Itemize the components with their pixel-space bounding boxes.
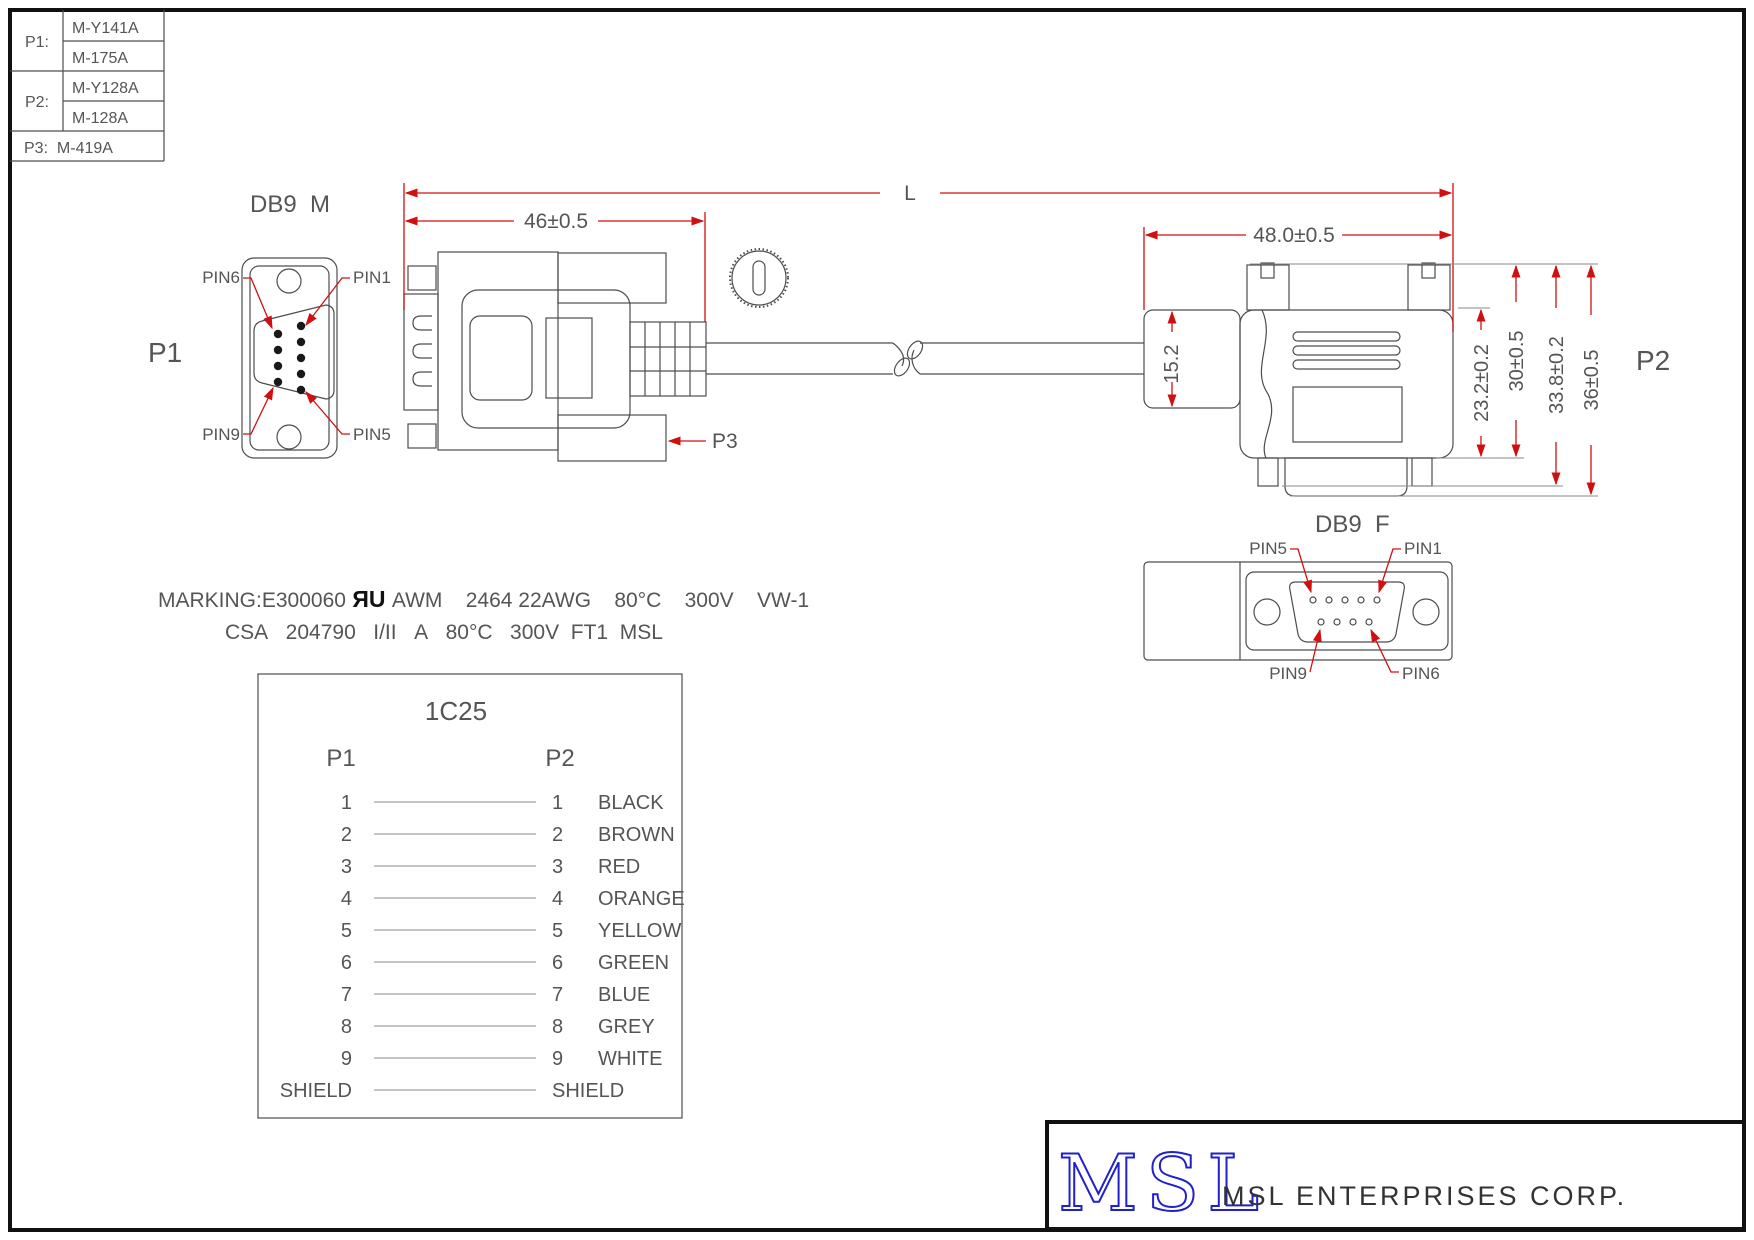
p1-side-view: P3 [404, 249, 788, 461]
dim-338-text: 33.8±0.2 [1546, 336, 1568, 414]
p2-screw-left [1258, 458, 1278, 486]
marking-block: MARKING:E300060 ЯU AWM 2464 22AWG 80°C 3… [158, 586, 809, 644]
svg-text:3: 3 [341, 856, 352, 878]
svg-text:SHIELD: SHIELD [280, 1080, 352, 1102]
db9f-pin5-label: PIN5 [1249, 539, 1287, 558]
svg-text:9: 9 [341, 1048, 352, 1070]
db9m-pin1-label: PIN1 [353, 268, 391, 287]
svg-text:9: 9 [552, 1048, 563, 1070]
db9m-pin1-leader [306, 278, 350, 325]
svg-text:RED: RED [598, 856, 640, 878]
p1-thumbscrew-head-bottom [408, 424, 436, 448]
wiring-row: 5 5 YELLOW [341, 920, 682, 942]
db9f-dshell [1290, 582, 1405, 642]
db9m-screw-hole-top [277, 269, 301, 293]
parts-table-p1-value2: M-175A [72, 50, 128, 67]
db9f-face-view: DB9 F PIN5 PIN1 PIN9 PIN6 [1144, 511, 1452, 683]
p2-thumbscrew-right [1408, 263, 1450, 310]
p1-flange-slots [413, 316, 432, 386]
company-name: MSL ENTERPRISES CORP. [1222, 1181, 1627, 1211]
db9m-pin6-leader [243, 278, 272, 328]
db9m-pin9-leader [243, 388, 273, 434]
p1-knurl-bottom [558, 415, 666, 461]
p3-ref-label: P3 [712, 430, 738, 453]
svg-text:6: 6 [341, 952, 352, 974]
dim-152-text: 15.2 [1161, 345, 1183, 384]
wiring-row: 2 2 BROWN [341, 824, 675, 846]
p2-screw-right [1412, 458, 1432, 486]
parts-table: P1: M-Y141A M-175A P2: M-Y128A M-128A P3… [10, 10, 164, 161]
db9m-pin6-label: PIN6 [202, 268, 240, 287]
p1-cable-ferrule [630, 322, 706, 396]
p1-front-shell [438, 252, 558, 450]
db9f-pin9-leader [1310, 630, 1320, 672]
p2-dshell-front [1285, 458, 1407, 496]
marking-line2: CSA 204790 I/II A 80°C 300V FT1 MSL [225, 621, 663, 644]
p1-knurl-top [558, 253, 666, 303]
wiring-row: 8 8 GREY [341, 1016, 655, 1038]
db9m-title: DB9 M [250, 191, 330, 218]
wiring-row: 1 1 BLACK [341, 792, 664, 814]
marking-line1: MARKING:E300060 ЯU AWM 2464 22AWG 80°C 3… [158, 586, 809, 612]
db9m-pin5-label: PIN5 [353, 425, 391, 444]
db9f-pin5-leader [1290, 549, 1311, 592]
svg-text:4: 4 [552, 888, 563, 910]
svg-text:2: 2 [341, 824, 352, 846]
wiring-row: 6 6 GREEN [341, 952, 669, 974]
p2-ref-label: P2 [1636, 345, 1670, 376]
wiring-title: 1C25 [425, 696, 487, 726]
drawing-sheet: P1: M-Y141A M-175A P2: M-Y128A M-128A P3… [0, 0, 1754, 1240]
db9f-pin1-label: PIN1 [1404, 539, 1442, 558]
svg-text:GREEN: GREEN [598, 952, 669, 974]
db9f-flange [1246, 572, 1448, 650]
svg-text:5: 5 [552, 920, 563, 942]
p1-knurl-grip [546, 318, 592, 398]
svg-text:BROWN: BROWN [598, 824, 675, 846]
svg-text:1: 1 [552, 792, 563, 814]
parts-table-p2-value2: M-128A [72, 110, 128, 127]
db9f-pin1-leader [1379, 549, 1401, 592]
parts-table-p2-value1: M-Y128A [72, 80, 139, 97]
thumbscrew-detail [730, 249, 788, 307]
db9m-face-view: DB9 M P1 PIN6 PIN1 PIN9 PIN5 [148, 191, 391, 458]
svg-text:ORANGE: ORANGE [598, 888, 685, 910]
wiring-col-p2: P2 [545, 745, 574, 772]
db9f-pin9-label: PIN9 [1269, 664, 1307, 683]
p2-thumbscrew-left [1247, 263, 1289, 310]
parts-table-p1-label: P1: [25, 34, 49, 51]
p2-body-joint [1261, 310, 1271, 458]
db9m-pin9-label: PIN9 [202, 425, 240, 444]
db9m-shell-outer [242, 258, 337, 458]
svg-text:4: 4 [341, 888, 352, 910]
title-block: MSL MSL ENTERPRISES CORP. [1047, 1122, 1744, 1229]
svg-text:7: 7 [341, 984, 352, 1006]
db9m-screw-hole-bottom [277, 425, 301, 449]
p2-strain-relief [1144, 310, 1240, 408]
p2-label-recess [1293, 387, 1402, 442]
db9f-pin6-label: PIN6 [1402, 664, 1440, 683]
svg-text:BLACK: BLACK [598, 792, 664, 814]
dim-46-text: 46±0.5 [524, 210, 588, 233]
svg-text:3: 3 [552, 856, 563, 878]
dim-48-text: 48.0±0.5 [1253, 224, 1335, 247]
db9f-title: DB9 F [1315, 511, 1390, 538]
svg-text:8: 8 [341, 1016, 352, 1038]
svg-text:YELLOW: YELLOW [598, 920, 681, 942]
db9m-dshell [254, 305, 334, 399]
wiring-col-p1: P1 [326, 745, 355, 772]
svg-text:BLUE: BLUE [598, 984, 650, 1006]
parts-table-p1-value1: M-Y141A [72, 20, 139, 37]
db9m-shell-inner [250, 266, 329, 450]
cable [706, 338, 1144, 378]
db9f-screw-hole-right [1413, 599, 1439, 625]
svg-text:GREY: GREY [598, 1016, 655, 1038]
wiring-row: 4 4 ORANGE [341, 888, 685, 910]
svg-text:6: 6 [552, 952, 563, 974]
wiring-row: 7 7 BLUE [341, 984, 650, 1006]
svg-text:8: 8 [552, 1016, 563, 1038]
dimensions: L 46±0.5 48.0±0.5 15.2 23.2±0.2 30±0.5 3… [404, 182, 1603, 496]
parts-table-p2-label: P2: [25, 94, 49, 111]
wiring-diagram: 1C25 P1 P2 1 1 BLACK 2 2 BROWN 3 3 RED 4… [258, 674, 685, 1118]
p1-ref-label: P1 [148, 337, 182, 368]
wiring-row: SHIELD SHIELD [280, 1080, 625, 1102]
wiring-row: 3 3 RED [341, 856, 640, 878]
wiring-row: 9 9 WHITE [341, 1048, 663, 1070]
p1-mating-flange [404, 294, 438, 410]
dim-232-text: 23.2±0.2 [1471, 344, 1493, 422]
dim-30-text: 30±0.5 [1506, 330, 1528, 391]
svg-text:7: 7 [552, 984, 563, 1006]
svg-text:5: 5 [341, 920, 352, 942]
p1-backshell-panel [470, 316, 532, 400]
db9f-pin-holes [1310, 597, 1380, 625]
svg-text:WHITE: WHITE [598, 1048, 662, 1070]
p2-vents [1293, 332, 1400, 369]
dim-L-text: L [904, 182, 916, 205]
dim-36-text: 36±0.5 [1581, 349, 1603, 410]
db9f-screw-hole-left [1254, 599, 1280, 625]
parts-table-p3-row: P3: M-419A [24, 140, 113, 157]
svg-text:1: 1 [341, 792, 352, 814]
svg-text:2: 2 [552, 824, 563, 846]
db9m-pin-dots [274, 322, 305, 394]
p1-thumbscrew-head-top [408, 266, 436, 290]
db9f-outline [1144, 562, 1452, 660]
svg-text:SHIELD: SHIELD [552, 1080, 624, 1102]
